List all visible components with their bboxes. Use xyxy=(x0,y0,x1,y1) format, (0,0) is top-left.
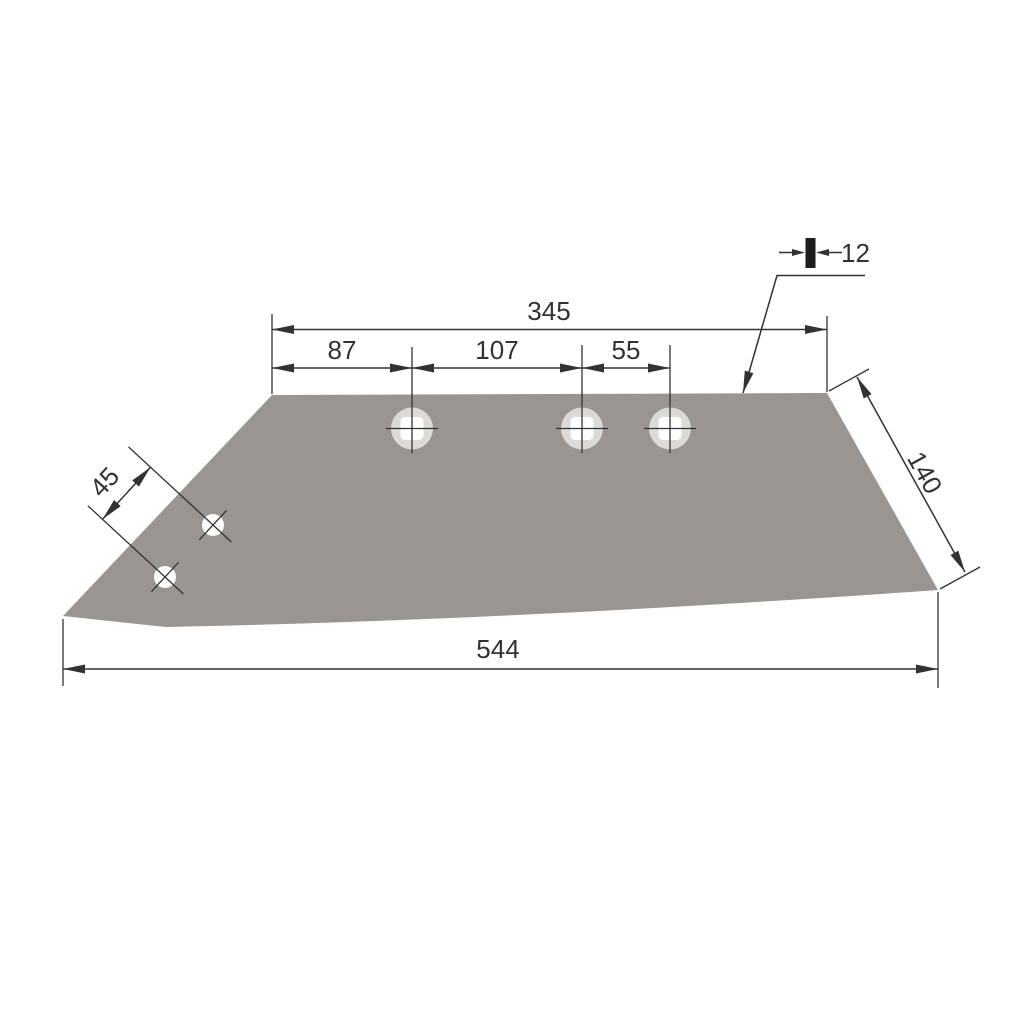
arrowhead-right xyxy=(805,325,827,334)
dimension-label-140: 140 xyxy=(901,446,948,498)
arrowhead-87-left xyxy=(272,364,294,373)
dimension-label-45: 45 xyxy=(84,461,126,503)
arrowhead-left xyxy=(792,249,805,256)
dimension-87-107-55: 87 107 55 xyxy=(272,335,670,373)
dimension-label-107: 107 xyxy=(475,335,518,365)
dimension-label-12: 12 xyxy=(841,238,870,268)
arrowhead-107-left xyxy=(412,364,434,373)
arrowhead-left xyxy=(272,325,294,334)
blade-shape xyxy=(63,393,938,627)
dimension-label-55: 55 xyxy=(612,335,641,365)
arrowhead-right xyxy=(916,665,938,674)
dimension-label-544: 544 xyxy=(476,634,519,664)
thickness-section-bar xyxy=(806,238,816,268)
extension-tick-bottom xyxy=(940,567,980,589)
arrowhead-55-left xyxy=(582,364,604,373)
arrowhead-top xyxy=(857,377,872,399)
arrowhead-87-right xyxy=(390,364,412,373)
drawing-canvas: 345 87 107 55 544 140 xyxy=(0,0,1024,1024)
arrowhead-right xyxy=(816,249,829,256)
arrowhead-55-right xyxy=(648,364,670,373)
dimension-label-87: 87 xyxy=(328,335,357,365)
arrowhead-bottom xyxy=(951,551,966,572)
leader-arrowhead xyxy=(743,371,753,393)
thickness-callout-12: 12 xyxy=(743,238,870,393)
blade-drawing: 345 87 107 55 544 140 xyxy=(0,0,1024,1024)
arrowhead-left xyxy=(63,665,85,674)
arrowhead-107-right xyxy=(560,364,582,373)
dimension-label-345: 345 xyxy=(527,296,570,326)
leader-line xyxy=(743,276,865,394)
